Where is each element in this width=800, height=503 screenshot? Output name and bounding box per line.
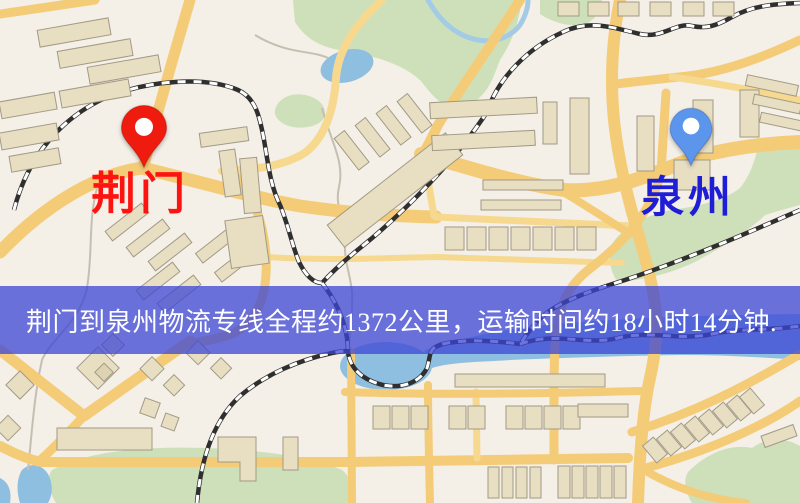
route-info-banner: 荆门到泉州物流专线全程约1372公里，运输时间约18小时14分钟. bbox=[0, 286, 800, 354]
map-screenshot: 荆门 泉州 荆门到泉州物流专线全程约1372公里，运输时间约18小时14分钟. bbox=[0, 0, 800, 503]
destination-pin-icon[interactable] bbox=[666, 107, 716, 168]
origin-pin-icon[interactable] bbox=[117, 104, 171, 170]
route-info-text: 荆门到泉州物流专线全程约1372公里，运输时间约18小时14分钟. bbox=[26, 302, 777, 339]
origin-city-label: 荆门 bbox=[30, 172, 250, 217]
destination-pin-hole bbox=[683, 118, 700, 135]
destination-pin-body[interactable] bbox=[670, 108, 712, 165]
destination-city-label: 泉州 bbox=[578, 177, 798, 220]
map-canvas[interactable] bbox=[0, 0, 800, 503]
origin-pin-hole bbox=[135, 118, 153, 136]
origin-pin-body[interactable] bbox=[122, 106, 167, 168]
